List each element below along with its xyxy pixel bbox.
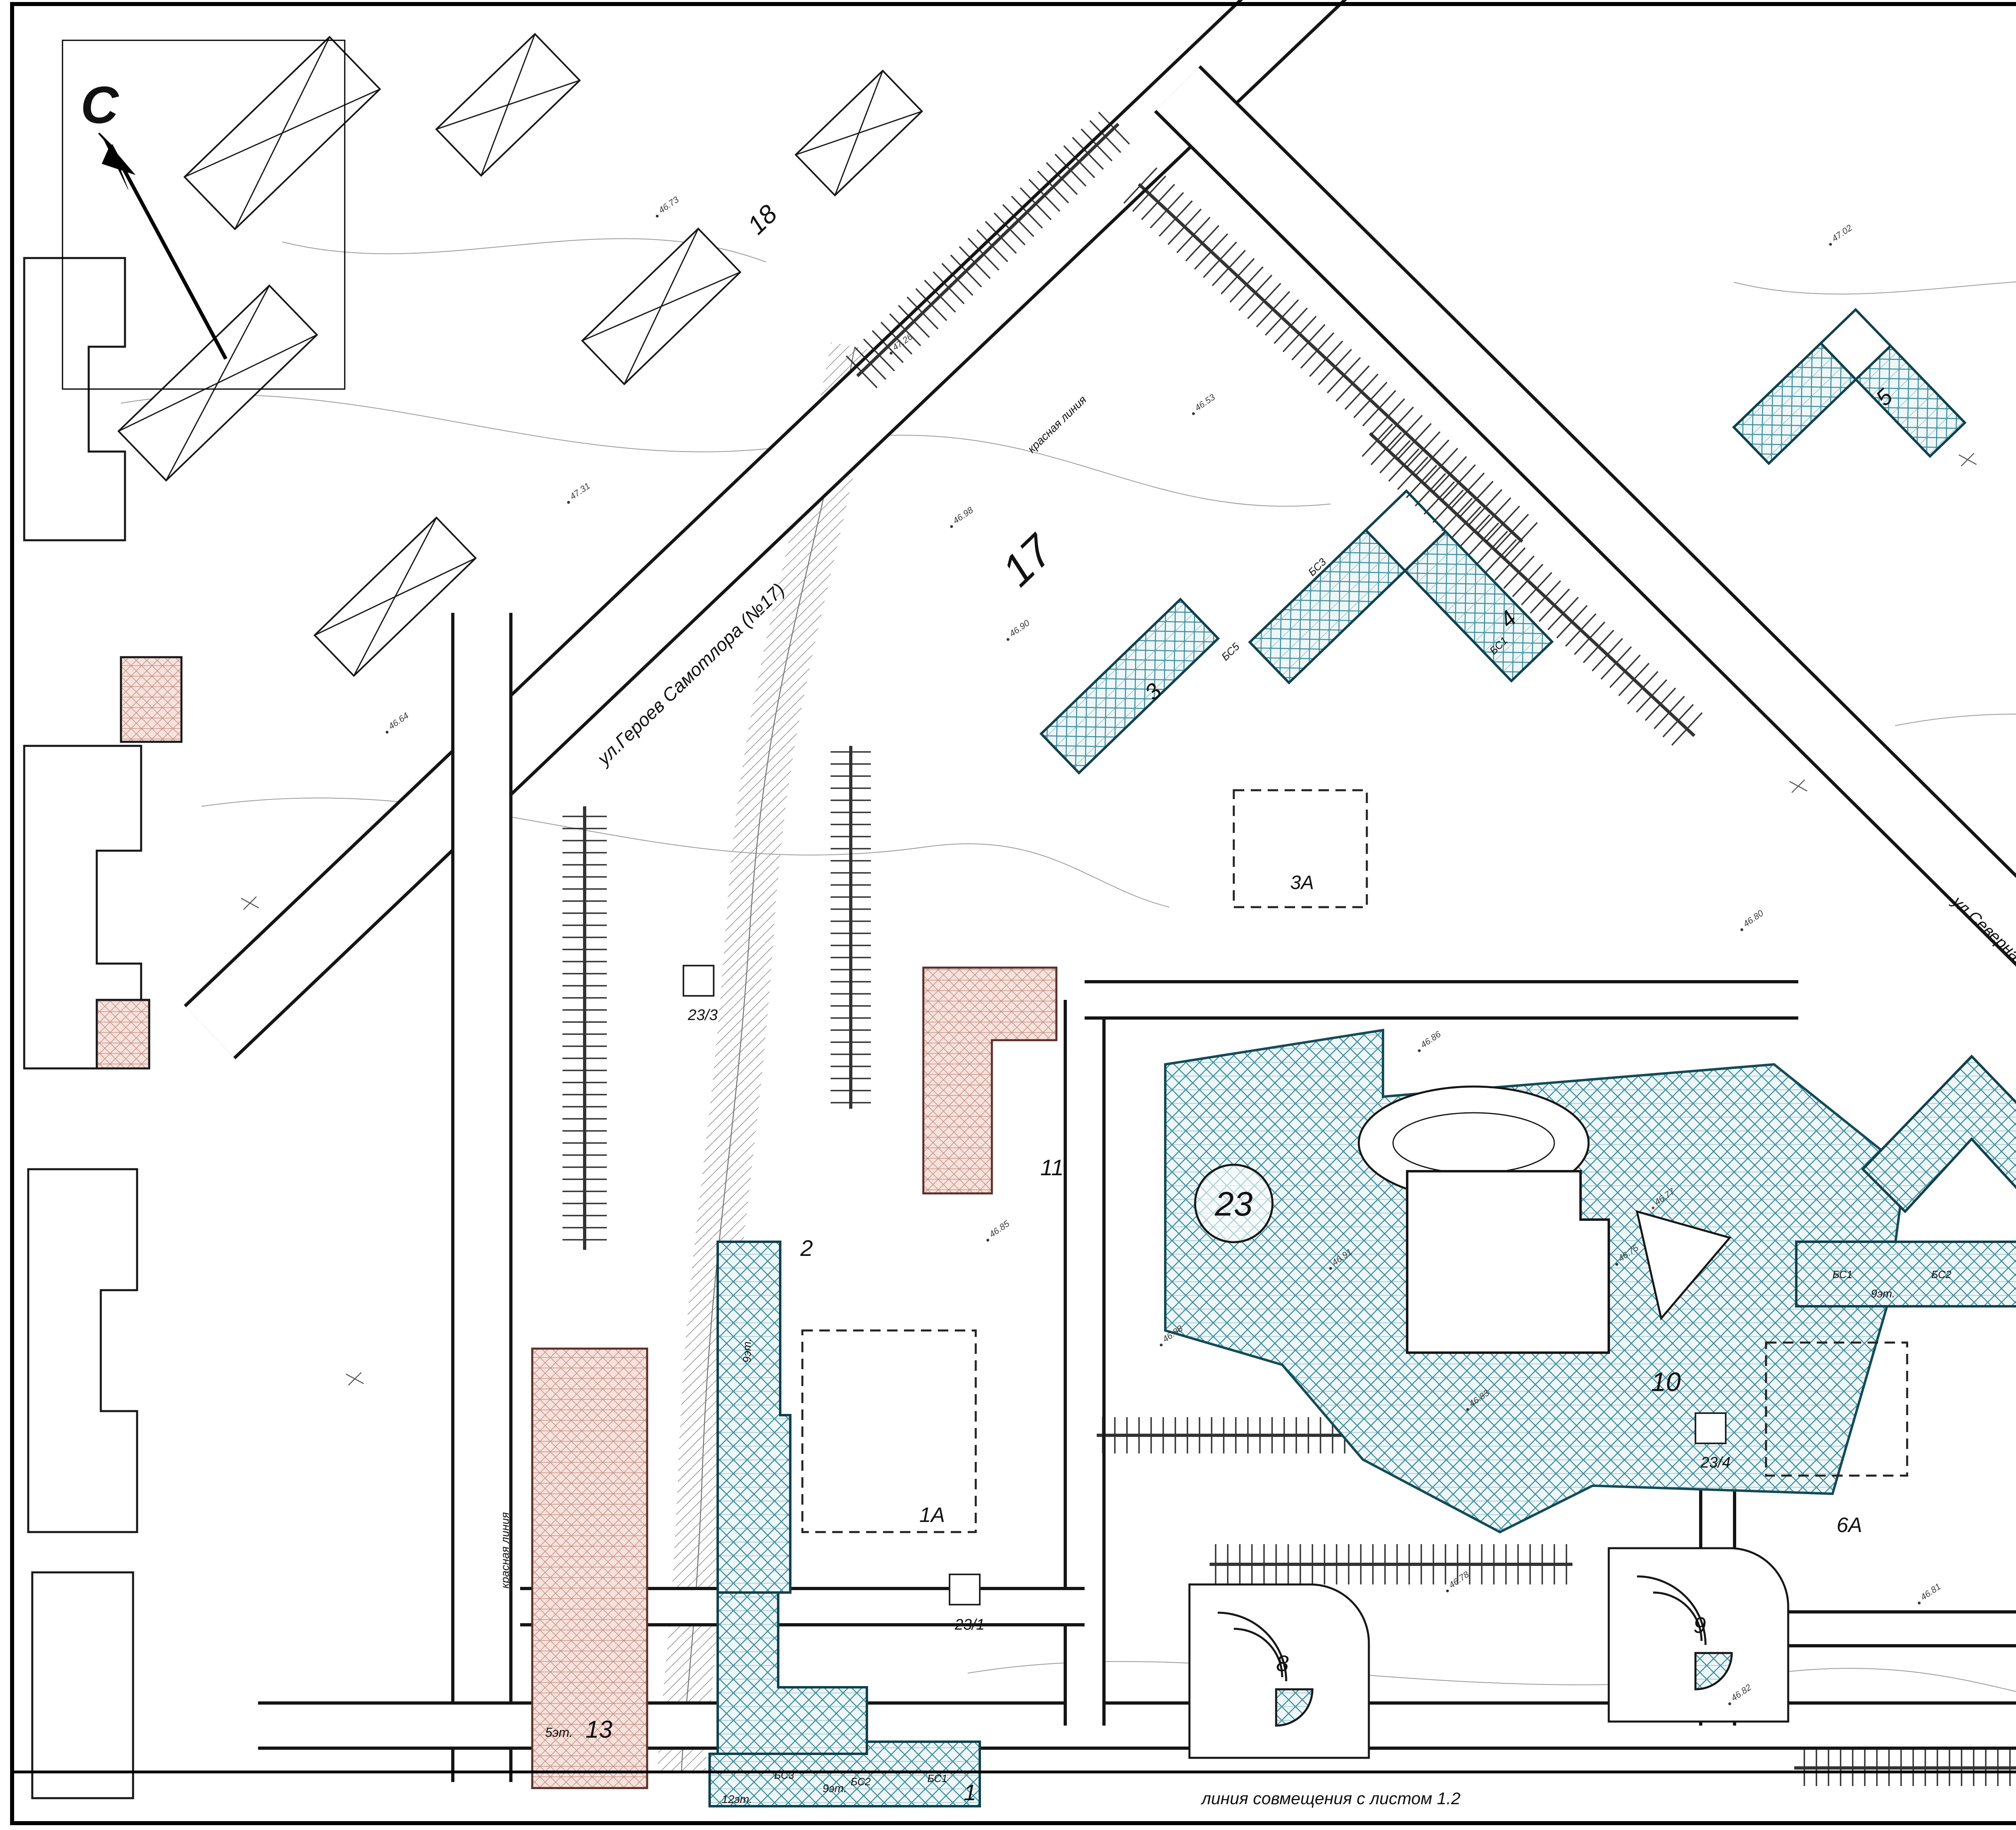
spot-dot [1192,412,1195,415]
map-label: 12эт. [722,1793,752,1805]
building-6-arm-top [1796,1242,2016,1306]
map-label: 1А [919,1503,945,1527]
map-label: БС1 [1833,1268,1853,1280]
spot-dot [1741,929,1743,931]
map-label: 2 [800,1235,813,1261]
spot-dot [987,1239,989,1242]
map-label: линия совмещения с листом 1.2 [1200,1789,1460,1808]
map-label: 23/1 [954,1616,985,1633]
drawing-sheet: 23 [0,0,2016,1830]
spot-dot [1329,1267,1332,1270]
map-label: 8 [1276,1651,1289,1676]
substation-23-1 [950,1574,980,1605]
site-plan-map: 23 [0,0,2016,1830]
map-label: БС2 [851,1776,871,1788]
map-label: БС1 [927,1772,948,1784]
map-label: С [81,75,119,134]
school-building [1407,1171,1609,1353]
map-label: красная линия [499,1512,511,1588]
map-label: 3А [1290,872,1314,893]
map-label: 23/4 [1700,1454,1731,1471]
map-label: БС3 [774,1769,794,1781]
map-label: 23/3 [687,1007,718,1024]
map-label: 6А [1837,1514,1862,1537]
spot-dot [1829,243,1832,246]
map-label: 5эт. [545,1725,573,1740]
substation-23-4 [1695,1413,1726,1443]
map-label: 9эт. [1871,1287,1895,1300]
spot-dot [386,731,389,734]
spot-dot [1616,1263,1618,1266]
quarter-number: 23 [1214,1185,1252,1223]
map-label: 9эт. [823,1782,847,1795]
spot-dot [890,352,893,355]
spot-dot [1446,1590,1449,1593]
spot-dot [1652,1207,1655,1210]
map-label: 11 [1040,1155,1064,1180]
spot-dot [1466,1408,1469,1411]
map-label: 10 [1651,1367,1681,1397]
substation-23-3 [683,966,714,996]
map-label: 13 [585,1716,612,1743]
spot-dot [656,215,659,218]
map-label: 1 [964,1780,976,1805]
map-label: БС2 [1931,1268,1951,1280]
spot-dot [1007,638,1010,641]
spot-dot [950,525,953,528]
map-label: 9эт. [741,1339,753,1363]
map-label: 9 [1693,1612,1706,1638]
spot-dot [1160,1344,1163,1347]
spot-dot [567,501,570,504]
spot-dot [1729,1703,1731,1705]
building-2 [718,1242,790,1593]
spot-dot [1418,1049,1421,1052]
spot-dot [1918,1602,1921,1605]
